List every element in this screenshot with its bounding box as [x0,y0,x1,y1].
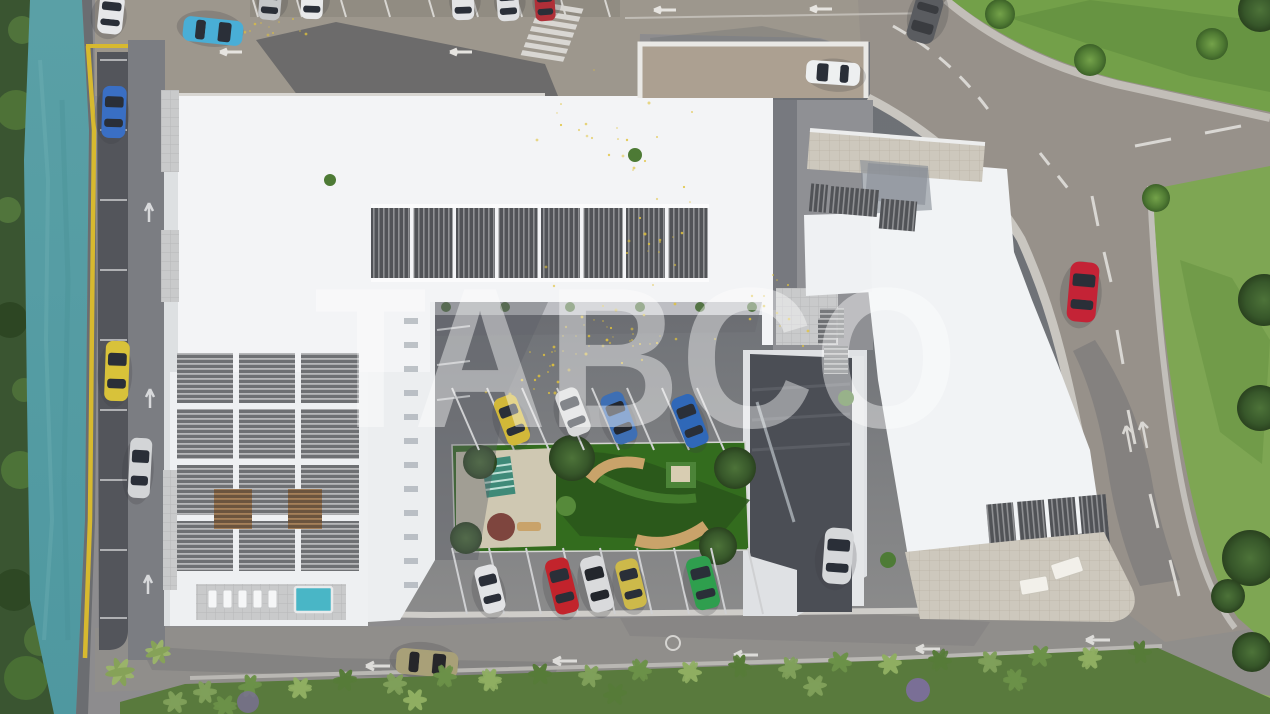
svg-text:TABCO: TABCO [314,247,958,470]
